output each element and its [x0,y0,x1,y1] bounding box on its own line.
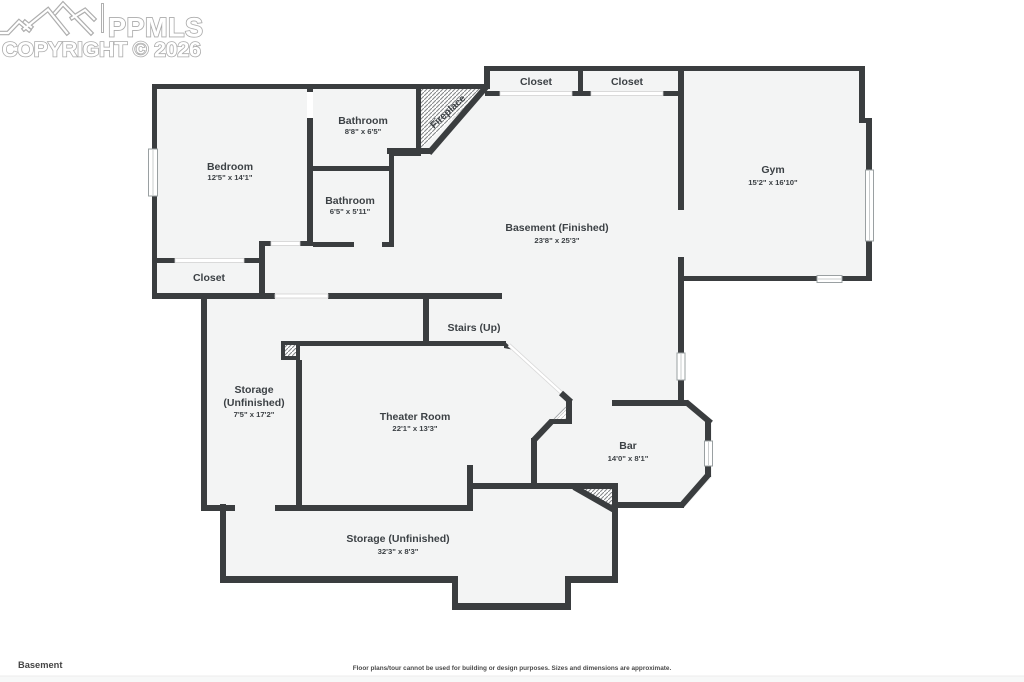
svg-text:22'1" x 13'3": 22'1" x 13'3" [392,424,438,433]
svg-text:Bathroom: Bathroom [338,115,388,127]
svg-text:Bar: Bar [619,440,637,452]
svg-text:COPYRIGHT © 2026: COPYRIGHT © 2026 [2,38,201,62]
svg-text:Theater Room: Theater Room [380,411,451,423]
svg-text:(Unfinished): (Unfinished) [223,397,284,409]
svg-text:Stairs (Up): Stairs (Up) [447,322,500,334]
svg-text:Storage: Storage [234,384,273,396]
svg-text:15'2" x 16'10": 15'2" x 16'10" [748,178,798,187]
svg-text:Basement: Basement [18,660,62,670]
svg-text:6'5" x 5'11": 6'5" x 5'11" [330,207,371,216]
svg-text:7'5" x 17'2": 7'5" x 17'2" [234,410,275,419]
svg-text:32'3" x 8'3": 32'3" x 8'3" [378,547,419,556]
svg-text:Gym: Gym [761,164,784,176]
svg-text:Bedroom: Bedroom [207,161,253,173]
svg-text:12'5" x 14'1": 12'5" x 14'1" [207,173,253,182]
svg-text:8'8" x 6'5": 8'8" x 6'5" [345,127,382,136]
svg-text:Closet: Closet [520,76,553,88]
svg-text:Basement (Finished): Basement (Finished) [505,222,608,234]
svg-text:Bathroom: Bathroom [325,195,375,207]
svg-text:Floor plans/tour cannot be use: Floor plans/tour cannot be used for buil… [353,665,672,672]
svg-text:Storage (Unfinished): Storage (Unfinished) [346,533,449,545]
svg-text:23'8" x 25'3": 23'8" x 25'3" [534,236,580,245]
svg-text:Closet: Closet [611,76,644,88]
svg-text:Closet: Closet [193,272,226,284]
svg-text:14'0" x 8'1": 14'0" x 8'1" [608,454,649,463]
